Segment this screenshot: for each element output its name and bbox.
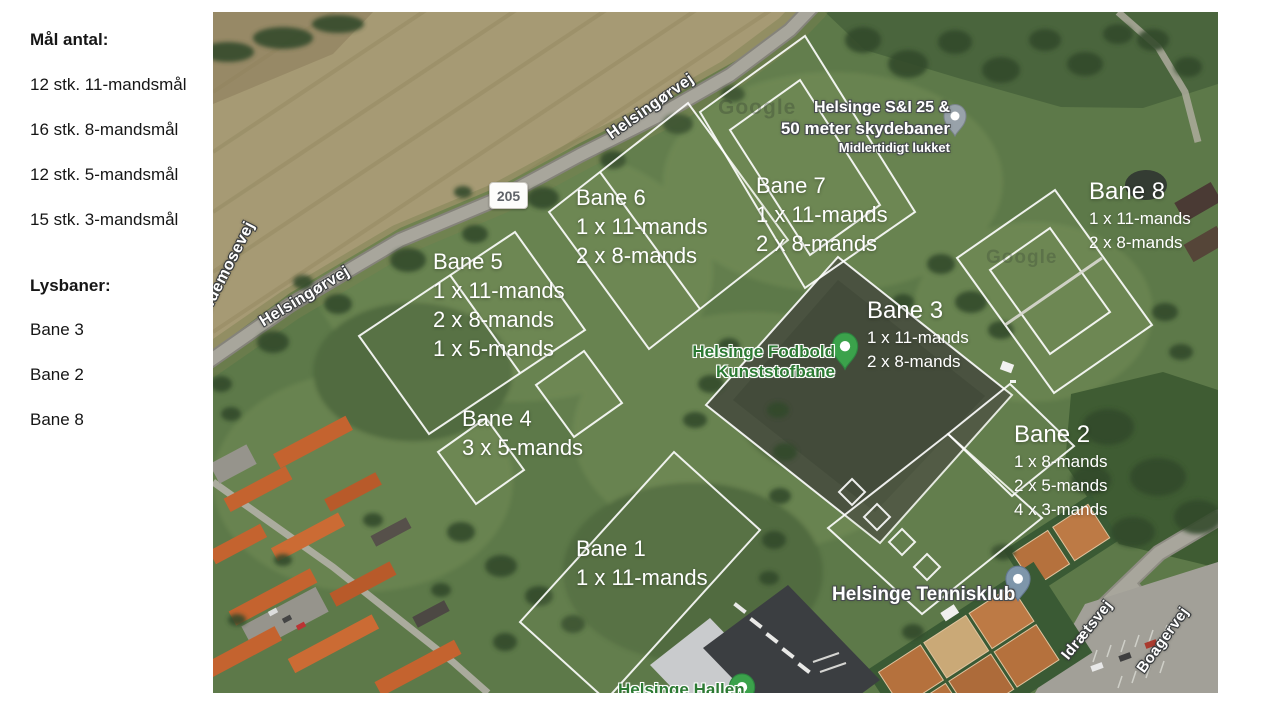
poi-skydebaner-line1: Helsinge S&I 25 & <box>720 97 950 118</box>
field-detail: 2 x 8-mands <box>1089 231 1191 255</box>
poi-tennisklub-label[interactable]: Helsinge Tennisklub <box>832 584 1015 606</box>
route-badge: 205 <box>489 182 528 209</box>
slide: Mål antal: 12 stk. 11-mandsmål 16 stk. 8… <box>0 0 1280 720</box>
field-title: Bane 5 <box>433 247 565 276</box>
field-detail: 1 x 11-mands <box>433 276 565 305</box>
field-detail: 1 x 11-mands <box>576 563 708 592</box>
goals-heading: Mål antal: <box>30 30 108 50</box>
field-title: Bane 2 <box>1014 420 1108 450</box>
poi-skydebaner-status: Midlertidigt lukket <box>720 139 950 157</box>
field-detail: 4 x 3-mands <box>1014 498 1108 522</box>
field-label-bane-5: Bane 5 1 x 11-mands 2 x 8-mands 1 x 5-ma… <box>433 247 565 363</box>
field-title: Bane 3 <box>867 296 969 326</box>
light-item: Bane 8 <box>30 410 84 430</box>
poi-kunststofbane-line2: Kunststofbane <box>645 362 835 382</box>
field-label-bane-2: Bane 2 1 x 8-mands 2 x 5-mands 4 x 3-man… <box>1014 420 1108 522</box>
field-detail: 1 x 11-mands <box>756 200 888 229</box>
field-title: Bane 8 <box>1089 177 1191 207</box>
field-detail: 1 x 8-mands <box>1014 450 1108 474</box>
field-title: Bane 6 <box>576 183 708 212</box>
field-label-bane-3: Bane 3 1 x 11-mands 2 x 8-mands <box>867 296 969 374</box>
field-label-bane-6: Bane 6 1 x 11-mands 2 x 8-mands <box>576 183 708 270</box>
goal-item: 16 stk. 8-mandsmål <box>30 120 178 140</box>
light-item: Bane 3 <box>30 320 84 340</box>
poi-hallen-label[interactable]: Helsinge Hallen <box>618 680 745 693</box>
field-detail: 3 x 5-mands <box>462 433 583 462</box>
field-detail: 2 x 5-mands <box>1014 474 1108 498</box>
field-detail: 2 x 8-mands <box>756 229 888 258</box>
field-detail: 1 x 11-mands <box>1089 207 1191 231</box>
goal-item: 12 stk. 11-mandsmål <box>30 75 187 95</box>
poi-kunststofbane-label[interactable]: Helsinge Fodbold Kunststofbane <box>645 342 835 382</box>
lights-heading: Lysbaner: <box>30 276 111 296</box>
map-canvas[interactable]: Google Google 205 Helsingørvej Helsingør… <box>213 12 1218 693</box>
field-label-bane-7: Bane 7 1 x 11-mands 2 x 8-mands <box>756 171 888 258</box>
field-title: Bane 1 <box>576 534 708 563</box>
field-detail: 2 x 8-mands <box>433 305 565 334</box>
poi-skydebaner-label[interactable]: Helsinge S&I 25 & 50 meter skydebaner Mi… <box>720 97 950 157</box>
field-detail: 2 x 8-mands <box>576 241 708 270</box>
goal-item: 12 stk. 5-mandsmål <box>30 165 178 185</box>
field-label-bane-1: Bane 1 1 x 11-mands <box>576 534 708 592</box>
poi-kunststofbane-line1: Helsinge Fodbold <box>645 342 835 362</box>
field-title: Bane 7 <box>756 171 888 200</box>
field-detail: 1 x 11-mands <box>576 212 708 241</box>
field-label-bane-8: Bane 8 1 x 11-mands 2 x 8-mands <box>1089 177 1191 255</box>
light-item: Bane 2 <box>30 365 84 385</box>
goal-item: 15 stk. 3-mandsmål <box>30 210 178 230</box>
field-title: Bane 4 <box>462 404 583 433</box>
google-watermark: Google <box>986 247 1057 269</box>
field-detail: 1 x 11-mands <box>867 326 969 350</box>
field-detail: 1 x 5-mands <box>433 334 565 363</box>
field-label-bane-4: Bane 4 3 x 5-mands <box>462 404 583 462</box>
poi-skydebaner-line2: 50 meter skydebaner <box>720 118 950 139</box>
field-detail: 2 x 8-mands <box>867 350 969 374</box>
